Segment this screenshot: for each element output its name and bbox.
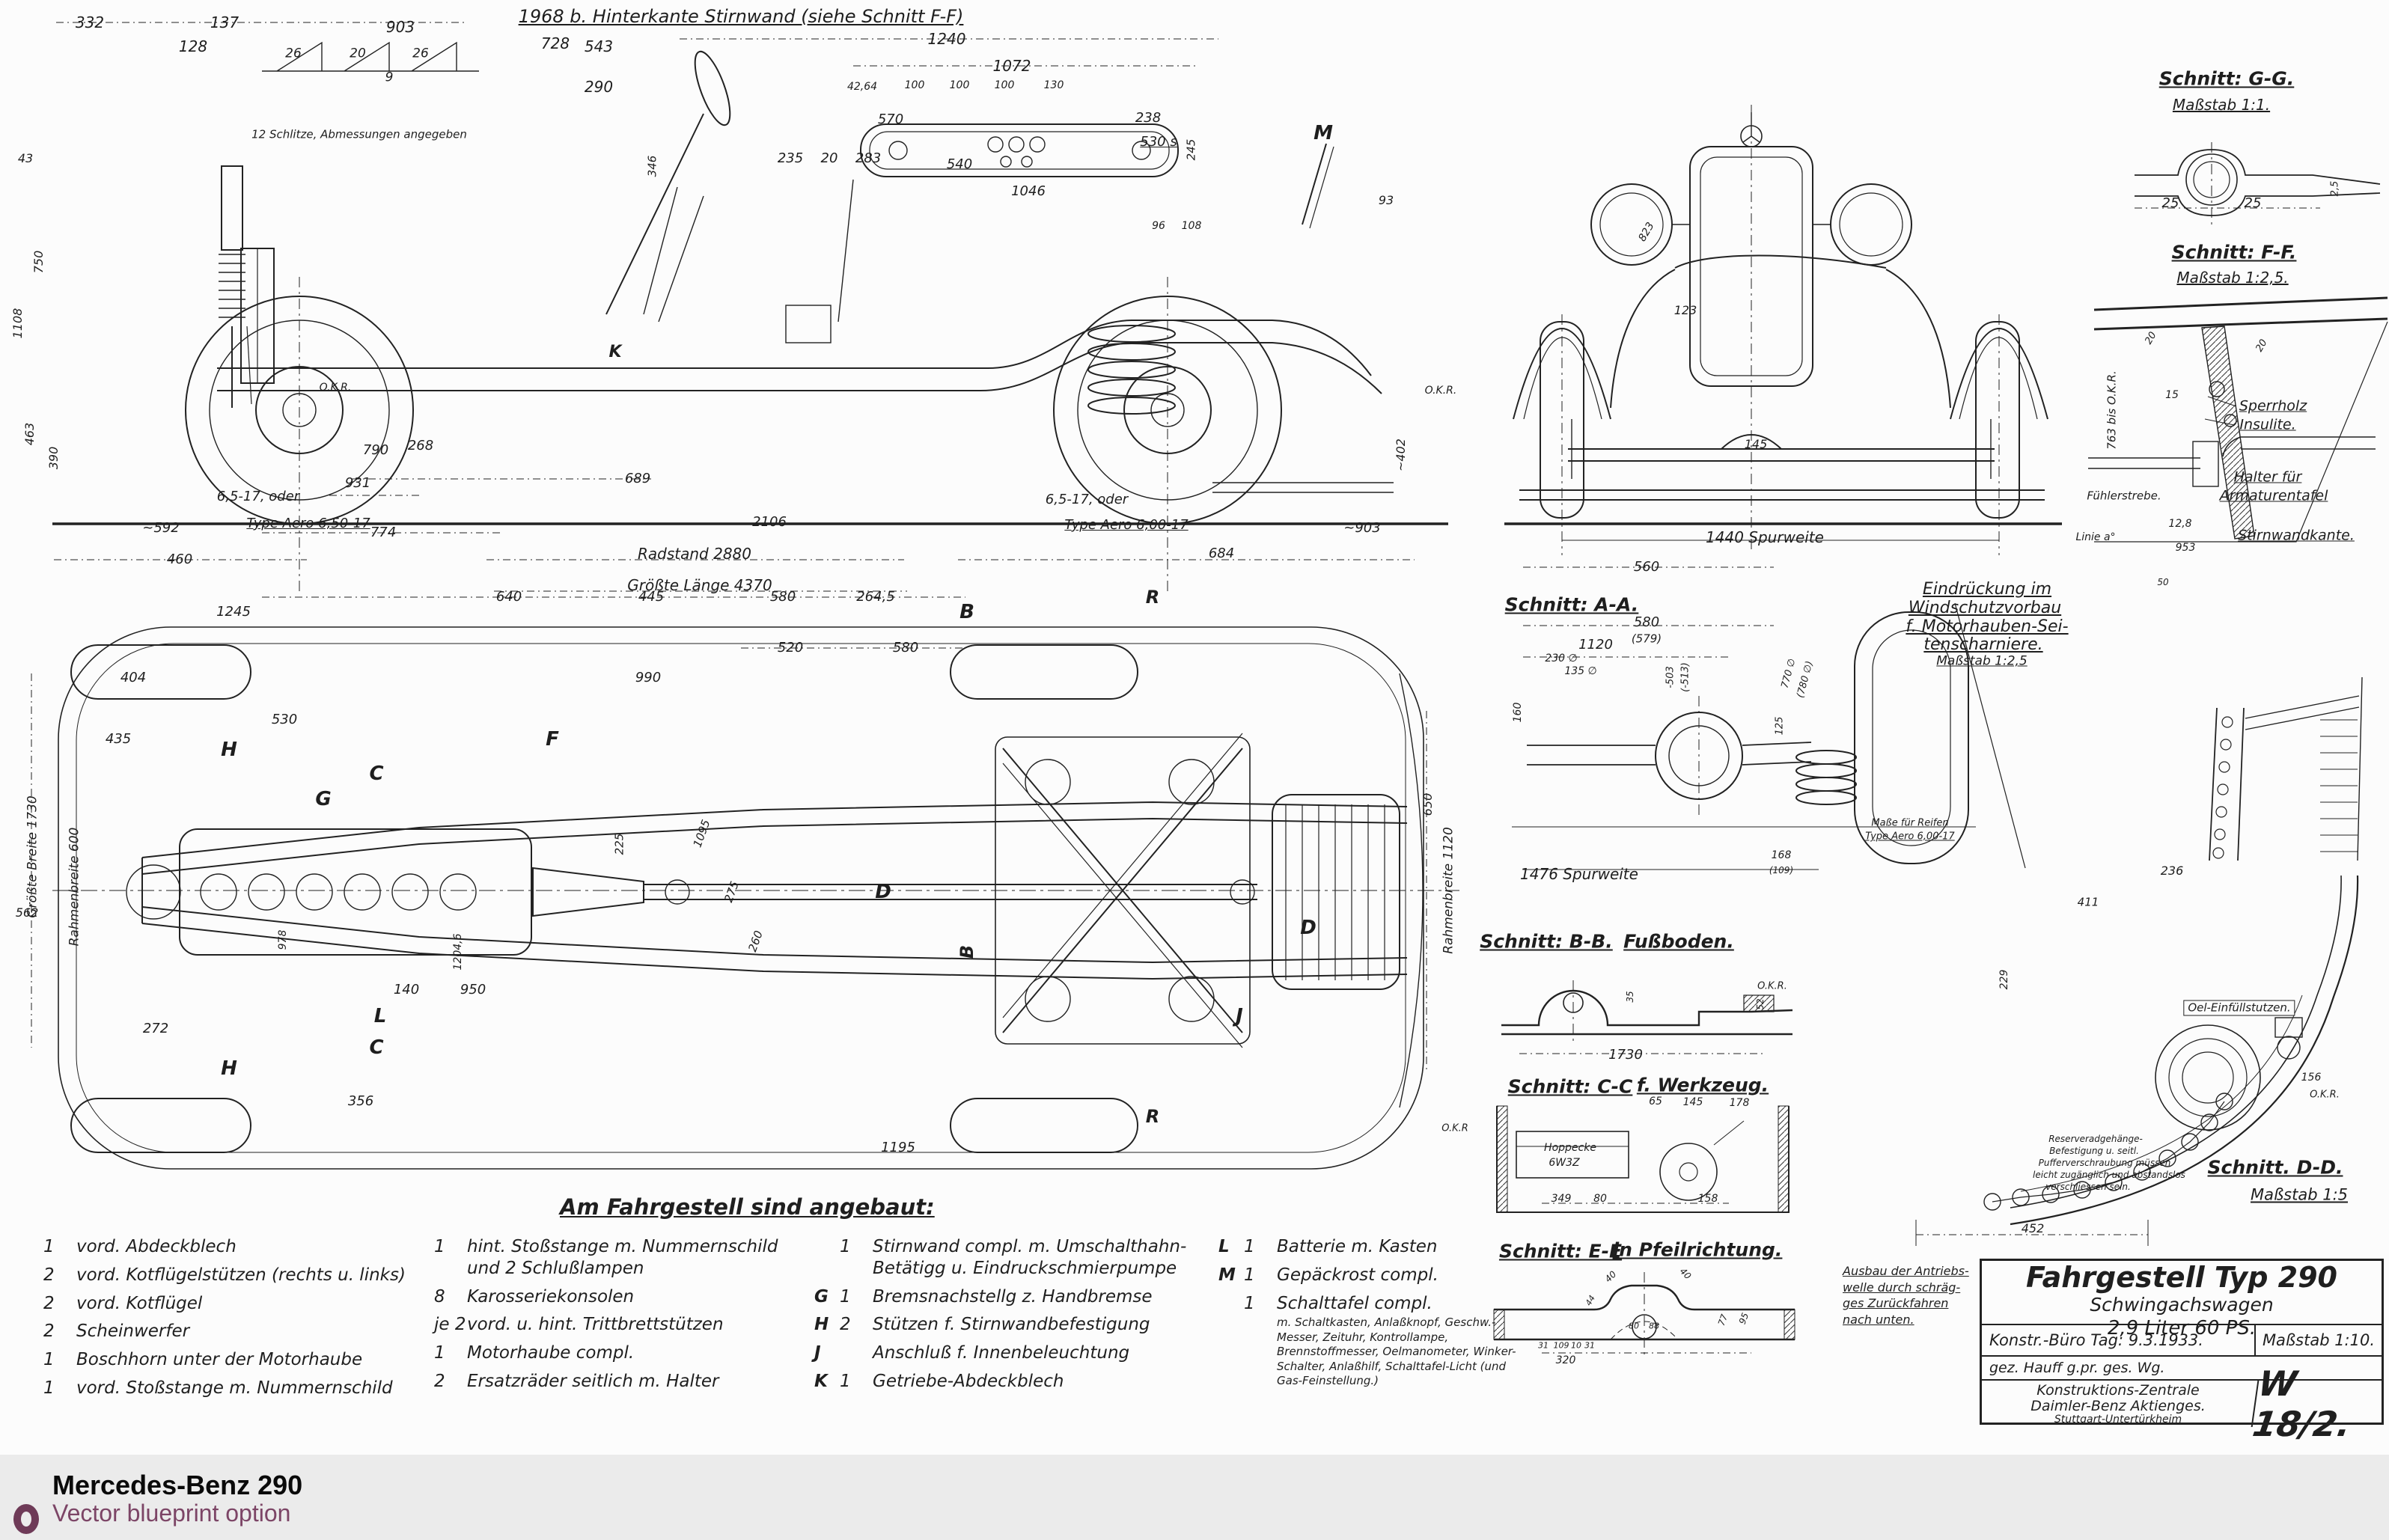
parts-list-item: G1Bremsnachstellg z. Handbremse — [814, 1286, 1203, 1308]
blueprint-label: 290 — [585, 79, 613, 94]
blueprint-label: L — [374, 1006, 387, 1026]
parts-list-item: 2Scheinwerfer — [43, 1321, 433, 1342]
blueprint-label: Maßstab 1:2,5 — [1936, 656, 2028, 668]
blueprint-label: O.K.R. — [1757, 982, 1787, 991]
parts-list-item: H2Stützen f. Stirnwandbefestigung — [814, 1314, 1203, 1336]
blueprint-label: Armaturentafel — [2220, 489, 2328, 504]
blueprint-label: 10 — [1571, 1342, 1581, 1350]
blueprint-label: G — [315, 789, 331, 809]
blueprint-label: ~402 — [1395, 439, 1407, 471]
blueprint-label: 390 — [48, 447, 60, 470]
blueprint-label: 1440 Spurweite — [1706, 530, 1824, 545]
blueprint-label: 435 — [106, 733, 131, 746]
parts-list-item: JAnschluß f. Innenbeleuchtung — [814, 1342, 1203, 1364]
blueprint-label: O.K.R. — [2310, 1090, 2340, 1100]
parts-list-item: 1Stirnwand compl. m. Umschalthahn-Betäti… — [814, 1236, 1203, 1280]
blueprint-label: Schnitt: A-A. — [1505, 596, 1639, 614]
blueprint-label: Befestigung u. seitl. — [2049, 1146, 2139, 1155]
blueprint-label: 80 — [1629, 1322, 1639, 1330]
blueprint-label: 238 — [1135, 111, 1161, 125]
note-line: nach unten. — [1843, 1312, 1985, 1328]
blueprint-label: B — [958, 945, 976, 959]
caption-subtitle: Vector blueprint option — [52, 1500, 290, 1527]
blueprint-label: J — [1236, 1006, 1243, 1026]
blueprint-label: 750 — [33, 251, 45, 274]
blueprint-label: 1240 — [928, 31, 966, 46]
logo-ring-icon — [13, 1504, 39, 1534]
blueprint-label: 463 — [24, 423, 36, 446]
blueprint-label: 100 — [905, 80, 925, 91]
blueprint-label: 236 — [2161, 865, 2184, 877]
blueprint-label: H — [221, 1059, 237, 1078]
blueprint-label: 990 — [635, 671, 661, 685]
blueprint-label: K — [608, 344, 621, 361]
blueprint-label: 404 — [120, 671, 146, 685]
blueprint-sheet: 33213790312872854329026202691968 b. Hint… — [0, 0, 2389, 1540]
blueprint-label: -503 — [1666, 666, 1676, 688]
blueprint-label: 25 — [2162, 197, 2179, 210]
blueprint-label: 268 — [408, 439, 433, 453]
blueprint-label: 109 — [1554, 1342, 1569, 1350]
parts-list-col1: 1vord. Abdeckblech2vord. Kotflügelstütze… — [43, 1236, 433, 1406]
organisation: Konstruktions-Zentrale Daimler-Benz Akti… — [1982, 1381, 2254, 1427]
parts-list-col3: 1Stirnwand compl. m. Umschalthahn-Betäti… — [814, 1236, 1203, 1399]
blueprint-label: Schnitt: G-G. — [2159, 70, 2295, 88]
blueprint-label: 1108 — [12, 308, 24, 339]
scale-label: Maßstab 1:10. — [2254, 1325, 2382, 1355]
blueprint-label: Windschutzvorbau — [1909, 600, 2061, 617]
blueprint-label: Maße für Reifen — [1871, 819, 1948, 828]
blueprint-label: 156 — [2301, 1072, 2322, 1083]
parts-list-item: 2vord. Kotflügel — [43, 1293, 433, 1315]
blueprint-label: Fußboden. — [1623, 932, 1734, 951]
blueprint-label: 96 — [1152, 221, 1165, 231]
note-line: Ausbau der Antriebs- — [1843, 1263, 1985, 1280]
blueprint-label: 903 — [386, 19, 415, 34]
blueprint-label: Radstand 2880 — [638, 546, 751, 561]
blueprint-label: Linie a° — [2075, 532, 2115, 543]
blueprint-label: 520 — [778, 641, 803, 655]
blueprint-label: O.K.R. — [320, 382, 352, 393]
blueprint-label: 950 — [460, 983, 486, 997]
blueprint-label: 20 — [350, 48, 366, 61]
parts-list-col4: L1Batterie m. KastenM1Gepäckrost compl.1… — [1218, 1236, 1548, 1396]
blueprint-label: M — [1314, 123, 1333, 143]
blueprint-label: 42,64 — [847, 82, 877, 92]
blueprint-label: Rahmenbreite 1120 — [1443, 827, 1456, 954]
drawing-title-suffix: Schwingachswagen — [2090, 1294, 2273, 1316]
parts-list-item: 1vord. Abdeckblech — [43, 1236, 433, 1258]
blueprint-label: Pufferverschraubung müssen — [2039, 1158, 2171, 1167]
blueprint-label: O.K.R. — [1425, 385, 1457, 396]
blueprint-label: 6W3Z — [1549, 1158, 1579, 1168]
blueprint-label: 20 — [821, 152, 838, 165]
blueprint-label: verschliessen sein. — [2045, 1182, 2131, 1191]
blueprint-label: 356 — [348, 1095, 373, 1108]
blueprint-label: 245 — [1186, 139, 1197, 161]
blueprint-label: 320 — [1556, 1355, 1576, 1366]
blueprint-label: 931 — [345, 477, 370, 490]
blueprint-label: Oel-Einfüllstutzen. — [2183, 1000, 2295, 1016]
blueprint-label: ~592 — [142, 522, 179, 535]
parts-list-item: 1Motorhaube compl. — [434, 1342, 808, 1364]
blueprint-label: 6,5-17, oder — [1046, 493, 1128, 507]
blueprint-label: 65 — [1649, 1096, 1662, 1107]
parts-list-item: 2Ersatzräder seitlich m. Halter — [434, 1371, 808, 1393]
blueprint-label: Insulite. — [2239, 418, 2295, 433]
blueprint-label: 9 — [385, 72, 394, 85]
blueprint-label: 272 — [143, 1022, 168, 1036]
blueprint-label: 1968 b. Hinterkante Stirnwand (siehe Sch… — [519, 7, 964, 25]
blueprint-label: 689 — [625, 472, 650, 486]
blueprint-label: 235 — [778, 152, 803, 165]
blueprint-label: 953 — [2176, 543, 2196, 553]
caption-bar: Mercedes-Benz 290 Vector blueprint optio… — [0, 1455, 2389, 1540]
blueprint-label: 540 — [947, 158, 972, 171]
blueprint-label: 562 — [16, 907, 39, 919]
blueprint-label: 100 — [995, 80, 1015, 91]
blueprint-label: 168 — [1772, 850, 1792, 861]
caption-title: Mercedes-Benz 290 — [52, 1470, 302, 1501]
blueprint-label: 640 — [496, 590, 522, 604]
blueprint-label: 130 — [1044, 80, 1064, 91]
blueprint-label: 26 — [285, 48, 302, 61]
parts-list-item: je 2vord. u. hint. Trittbrettstützen — [434, 1314, 808, 1336]
blueprint-label: C — [369, 764, 383, 783]
blueprint-label: 12,8 — [2168, 519, 2191, 529]
blueprint-label: f. Motorhauben-Sei- — [1906, 619, 2068, 635]
blueprint-label: 452 — [2022, 1223, 2045, 1235]
blueprint-label: 12 Schlitze, Abmessungen angegeben — [251, 129, 467, 141]
blueprint-label: 160 — [1513, 703, 1523, 723]
note-line: ges Zurückfahren — [1843, 1295, 1985, 1312]
parts-list-item: K1Getriebe-Abdeckblech — [814, 1371, 1203, 1393]
blueprint-label: 1120 — [1578, 638, 1613, 652]
parts-list-item: M1Gepäckrost compl. — [1218, 1265, 1548, 1286]
blueprint-label: O.K.R — [1441, 1124, 1468, 1134]
blueprint-label: Schnitt: F-F. — [2172, 243, 2297, 262]
blueprint-label: 332 — [76, 15, 104, 30]
blueprint-label: 88 — [1649, 1322, 1659, 1330]
blueprint-label: tenscharniere. — [1923, 637, 2042, 653]
blueprint-label: Sperrholz — [2239, 400, 2307, 414]
blueprint-label: f. Werkzeug. — [1637, 1076, 1769, 1095]
blueprint-label: Maßstab 1:5 — [2251, 1188, 2348, 1203]
blueprint-label: 178 — [1730, 1098, 1750, 1108]
blueprint-label: Schnitt: B-B. — [1480, 932, 1613, 951]
blueprint-label: Halter für — [2234, 471, 2302, 485]
blueprint-label: Maßstab 1:2,5. — [2176, 270, 2288, 285]
parts-list-heading: Am Fahrgestell sind angebaut: — [560, 1194, 935, 1220]
parts-list-item: 8Karosseriekonsolen — [434, 1286, 808, 1308]
blueprint-label: 543 — [585, 39, 613, 54]
blueprint-label: 978 — [278, 930, 288, 950]
blueprint-label: 137 — [210, 15, 239, 30]
blueprint-label: 6,5-17, oder — [217, 490, 299, 504]
blueprint-label: 570 — [878, 113, 903, 126]
blueprint-label: 1730 — [1608, 1048, 1643, 1062]
blueprint-label: 128 — [179, 39, 207, 54]
blueprint-label: 35 — [1626, 991, 1635, 1002]
drive-shaft-note: Ausbau der Antriebs- welle durch schräg-… — [1843, 1263, 1985, 1327]
blueprint-label: R — [1146, 588, 1159, 606]
blueprint-label: Schnitt: C-C — [1508, 1078, 1633, 1096]
blueprint-label: H — [221, 740, 237, 760]
blueprint-label: 650 — [1422, 793, 1434, 816]
blueprint-label: in Pfeilrichtung. — [1613, 1241, 1783, 1259]
blueprint-label: 125 — [1775, 717, 1785, 736]
blueprint-label: 108 — [1182, 221, 1202, 231]
blueprint-label: 684 — [1209, 547, 1234, 560]
blueprint-label: 1072 — [993, 58, 1031, 73]
blueprint-label: Eindrückung im — [1923, 581, 2051, 598]
parts-list-item: 1Boschhorn unter der Motorhaube — [43, 1349, 433, 1371]
blueprint-label: Reserveradgehänge- — [2048, 1134, 2143, 1143]
blueprint-label: 2106 — [752, 516, 787, 529]
parts-list-item: L1Batterie m. Kasten — [1218, 1236, 1548, 1258]
blueprint-label: 100 — [950, 80, 970, 91]
blueprint-label: 225 — [614, 834, 626, 855]
blueprint-label: 580 — [1634, 616, 1659, 629]
blueprint-label: 1245 — [216, 605, 251, 619]
org-line: Stuttgart-Untertürkheim — [1982, 1414, 2254, 1426]
blueprint-label: 790 — [363, 444, 388, 457]
blueprint-label: (579) — [1632, 634, 1662, 645]
blueprint-label: D — [875, 882, 891, 902]
blueprint-label: (-513) — [1681, 662, 1691, 692]
blueprint-label: (109) — [1769, 866, 1793, 875]
drawing-title: Fahrgestell Typ 290 — [2026, 1261, 2337, 1294]
blueprint-label: ~903 — [1343, 522, 1380, 535]
blueprint-label: 145 — [1745, 439, 1768, 450]
blueprint-label: 145 — [1683, 1097, 1703, 1107]
blueprint-label: Schnitt. D-D. — [2208, 1158, 2343, 1177]
parts-list-item: 2vord. Kotflügelstützen (rechts u. links… — [43, 1265, 433, 1286]
org-line: Konstruktions-Zentrale — [1982, 1383, 2254, 1399]
blueprint-label: 2,5 — [2331, 181, 2340, 197]
blueprint-label: 31 — [1584, 1342, 1595, 1350]
blueprint-label: 229 — [1999, 970, 2010, 990]
blueprint-label: Type Aero 6,00-17 — [1865, 832, 1954, 842]
blueprint-label: 43 — [18, 153, 33, 165]
blueprint-label: 763 bis O.K.R. — [2107, 370, 2118, 449]
blueprint-label: 580 — [770, 590, 796, 604]
blueprint-label: 580 — [893, 641, 918, 655]
blueprint-label: 445 — [638, 590, 664, 604]
blueprint-label: 135 ∅ — [1564, 666, 1596, 676]
blueprint-label: 158 — [1698, 1194, 1718, 1204]
blueprint-label: Stirnwandkante. — [2238, 529, 2355, 543]
blueprint-label: D — [1300, 918, 1316, 938]
note-line: welle durch schräg- — [1843, 1280, 1985, 1296]
blueprint-label: Type Aero 6,50-17 — [246, 517, 370, 531]
parts-list-item: 1hint. Stoßstange m. Nummernschild und 2… — [434, 1236, 808, 1280]
title-block-header: Fahrgestell Typ 290 Schwingachswagen 2,9… — [1982, 1261, 2382, 1325]
blueprint-label: 1046 — [1011, 185, 1046, 198]
blueprint-label: F — [546, 730, 559, 749]
blueprint-label: R — [1146, 1107, 1159, 1125]
drawing-number: W 18/2. — [2251, 1381, 2385, 1427]
parts-list-item: 1Schalttafel compl.m. Schaltkasten, Anla… — [1218, 1293, 1548, 1389]
blueprint-label: 264,5 — [856, 590, 895, 604]
blueprint-label: leicht zugänglich und abstandslos — [2033, 1170, 2185, 1179]
org-line: Daimler-Benz Aktienges. — [1982, 1399, 2254, 1414]
blueprint-label: 411 — [2078, 897, 2099, 908]
blueprint-label: 25 — [2245, 197, 2262, 210]
blueprint-label: 283 — [855, 152, 881, 165]
blueprint-label: 26 — [412, 48, 429, 61]
blueprint-label: 460 — [167, 553, 192, 566]
blueprint-label: Maßstab 1:1. — [2173, 97, 2270, 112]
blueprint-label: 349 — [1552, 1194, 1572, 1204]
blueprint-label: 530 s — [1140, 135, 1177, 149]
blueprint-label: 230 ∅ — [1545, 653, 1577, 664]
bureau-and-date: Konstr.-Büro Tag: 9.3.1933. — [1982, 1331, 2254, 1349]
blueprint-label: 93 — [1379, 195, 1394, 207]
blueprint-label: Hoppecke — [1544, 1143, 1596, 1153]
blueprint-label: 728 — [541, 36, 570, 51]
title-block: Fahrgestell Typ 290 Schwingachswagen 2,9… — [1980, 1259, 2384, 1425]
blueprint-label: 140 — [394, 983, 419, 997]
blueprint-label: Type Aero 6,00-17 — [1064, 519, 1188, 532]
blueprint-label: Fühlerstrebe. — [2087, 491, 2161, 502]
blueprint-label: 123 — [1674, 305, 1697, 317]
blueprint-label: 52 — [1756, 998, 1765, 1009]
blueprint-label: 774 — [370, 526, 396, 540]
blueprint-label: 50 — [2157, 578, 2168, 587]
parts-list-col2: 1hint. Stoßstange m. Nummernschild und 2… — [434, 1236, 808, 1399]
blueprint-label: 80 — [1593, 1194, 1607, 1204]
blueprint-label: 1476 Spurweite — [1520, 867, 1638, 881]
blueprint-label: 346 — [647, 156, 659, 177]
blueprint-label: C — [369, 1038, 383, 1057]
blueprint-label: 560 — [1634, 560, 1659, 574]
blueprint-label: B — [959, 602, 974, 622]
blueprint-label: 1204,6 — [453, 934, 463, 971]
parts-list-item: 1vord. Stoßstange m. Nummernschild — [43, 1378, 433, 1399]
blueprint-label: 15 — [2165, 390, 2179, 400]
blueprint-label: 1195 — [881, 1141, 915, 1155]
blueprint-label: Rahmenbreite 600 — [69, 828, 82, 947]
blueprint-label: 530 — [272, 713, 297, 727]
blueprint-label: Größte Breite 1730 — [27, 795, 40, 917]
